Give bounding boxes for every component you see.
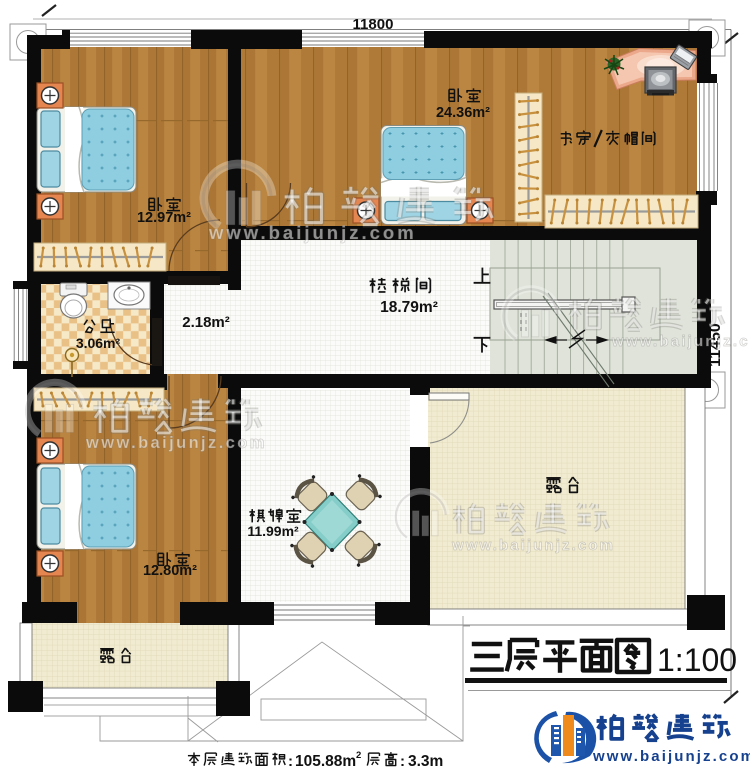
svg-text:www.baijunjz.com: www.baijunjz.com [85,434,267,452]
svg-text:www.baijunjz.com: www.baijunjz.com [208,222,417,243]
svg-text:11800: 11800 [353,16,394,33]
svg-text:11.99m²: 11.99m² [247,523,299,539]
svg-text:www.baijunjz.com: www.baijunjz.com [611,333,750,350]
svg-text:1:100: 1:100 [657,642,737,678]
svg-text:105.88m: 105.88m [295,753,356,770]
svg-text:2: 2 [356,750,361,761]
svg-text:www.baijunjz.com: www.baijunjz.com [451,537,615,554]
svg-text:3.06m²: 3.06m² [76,335,121,351]
svg-text::: : [288,753,293,770]
svg-text::: : [400,753,405,770]
svg-text:12.80m²: 12.80m² [143,563,197,579]
svg-text:www.baijunjz.com: www.baijunjz.com [592,748,750,765]
svg-text:3.3m: 3.3m [408,753,443,770]
svg-text:24.36m²: 24.36m² [436,105,490,121]
svg-text:12.97m²: 12.97m² [137,210,191,226]
svg-text:2.18m²: 2.18m² [182,314,230,331]
svg-text:18.79m²: 18.79m² [380,299,438,316]
